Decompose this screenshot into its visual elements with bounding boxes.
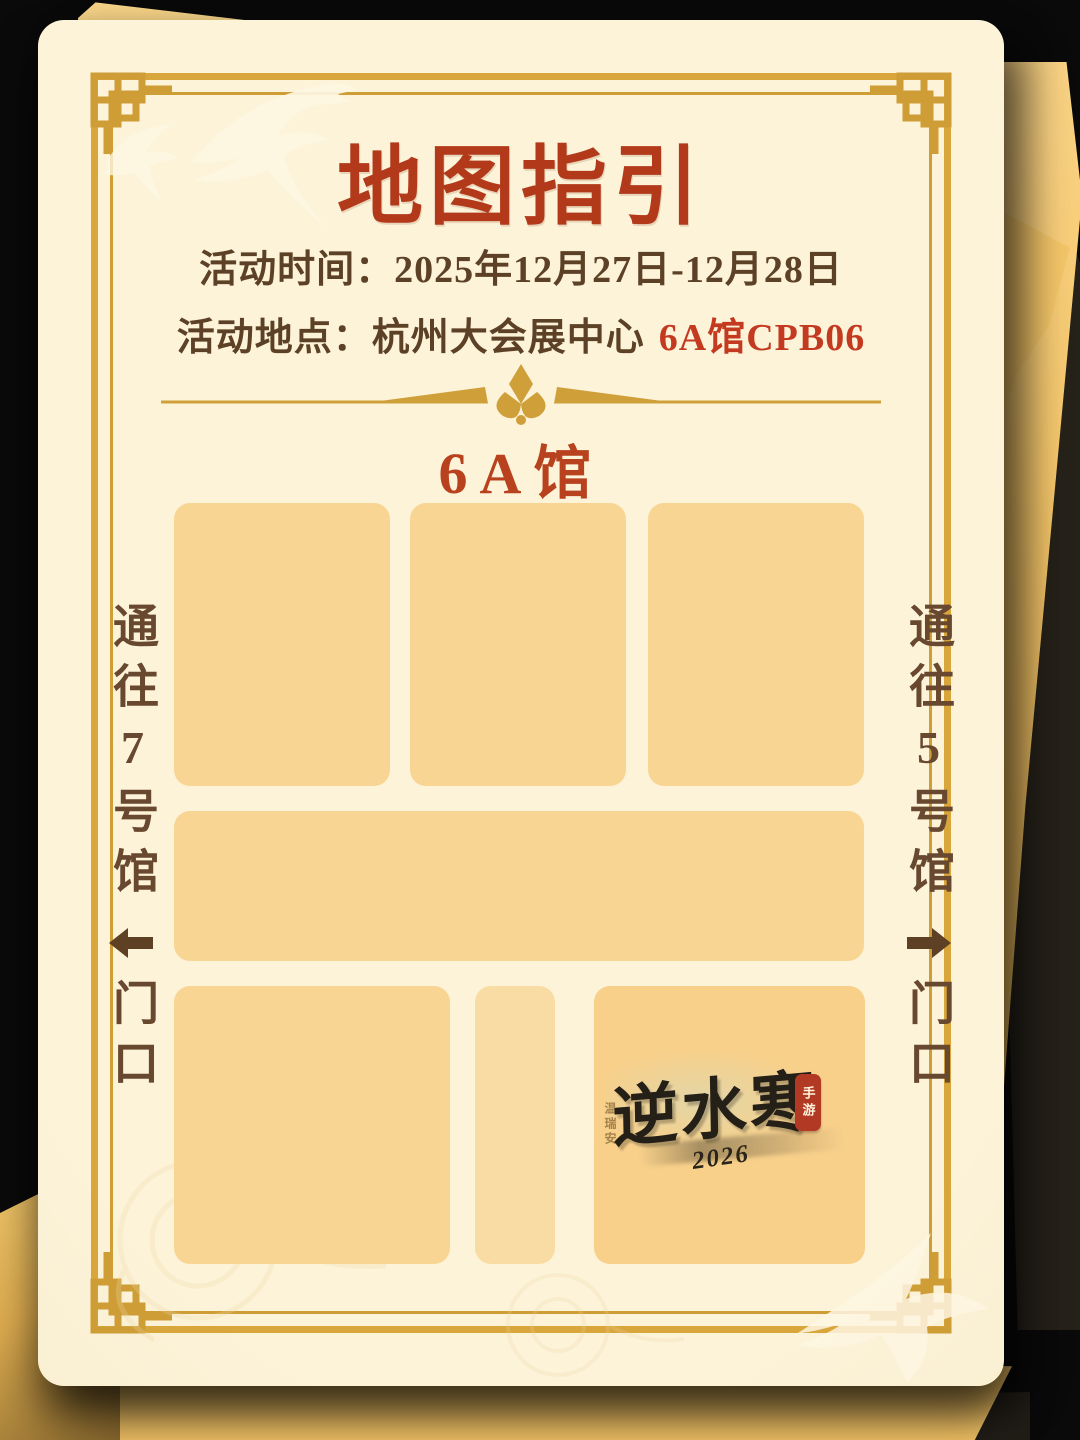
nav-left-hall7: 通往7号馆 门口 — [102, 602, 162, 1099]
nav-right-text: 通往5号馆 — [905, 602, 951, 907]
nav-left-text: 通往7号馆 — [109, 602, 155, 907]
mobile-game-seal-text: 手游 — [802, 1086, 815, 1120]
divider-ornament-icon — [161, 362, 881, 426]
left-arrow-icon — [109, 927, 155, 959]
booth-top-1 — [174, 503, 390, 786]
booth-top-2 — [410, 503, 626, 786]
booth-bottom-narrow — [475, 986, 555, 1264]
event-info: 活动时间：2025年12月27日-12月28日 活动地点：杭州大会展中心6A馆C… — [38, 238, 1004, 361]
event-place-row: 活动地点：杭州大会展中心6A馆CPB06 — [177, 306, 865, 361]
booth-top-3 — [648, 503, 864, 786]
event-place-value: 杭州大会展中心 — [372, 317, 645, 359]
event-time-label: 活动时间： — [199, 249, 394, 291]
right-arrow-icon — [905, 927, 951, 959]
nav-left-entrance: 门口 — [109, 979, 155, 1099]
booth-middle-wide — [174, 811, 864, 961]
mobile-game-seal: 手游 — [795, 1074, 821, 1131]
event-booth-code: 6A馆CPB06 — [659, 317, 865, 359]
poster-card: 地图指引 活动时间：2025年12月27日-12月28日 活动地点：杭州大会展中… — [38, 20, 1004, 1386]
event-time-row: 活动时间：2025年12月27日-12月28日 — [199, 238, 843, 293]
booth-bottom-left — [174, 986, 450, 1264]
nav-right-hall5: 通往5号馆 门口 — [898, 602, 958, 1099]
hall-title: 6A馆 — [38, 426, 1004, 510]
event-place-label: 活动地点： — [177, 317, 372, 359]
game-logo: 逆水寒 — [612, 1069, 819, 1153]
page-title: 地图指引 — [38, 116, 1004, 241]
event-time-value: 2025年12月27日-12月28日 — [394, 249, 843, 291]
cloud-watermark-icon — [468, 1250, 688, 1400]
dove-icon — [773, 1215, 1018, 1385]
nav-right-entrance: 门口 — [905, 979, 951, 1099]
